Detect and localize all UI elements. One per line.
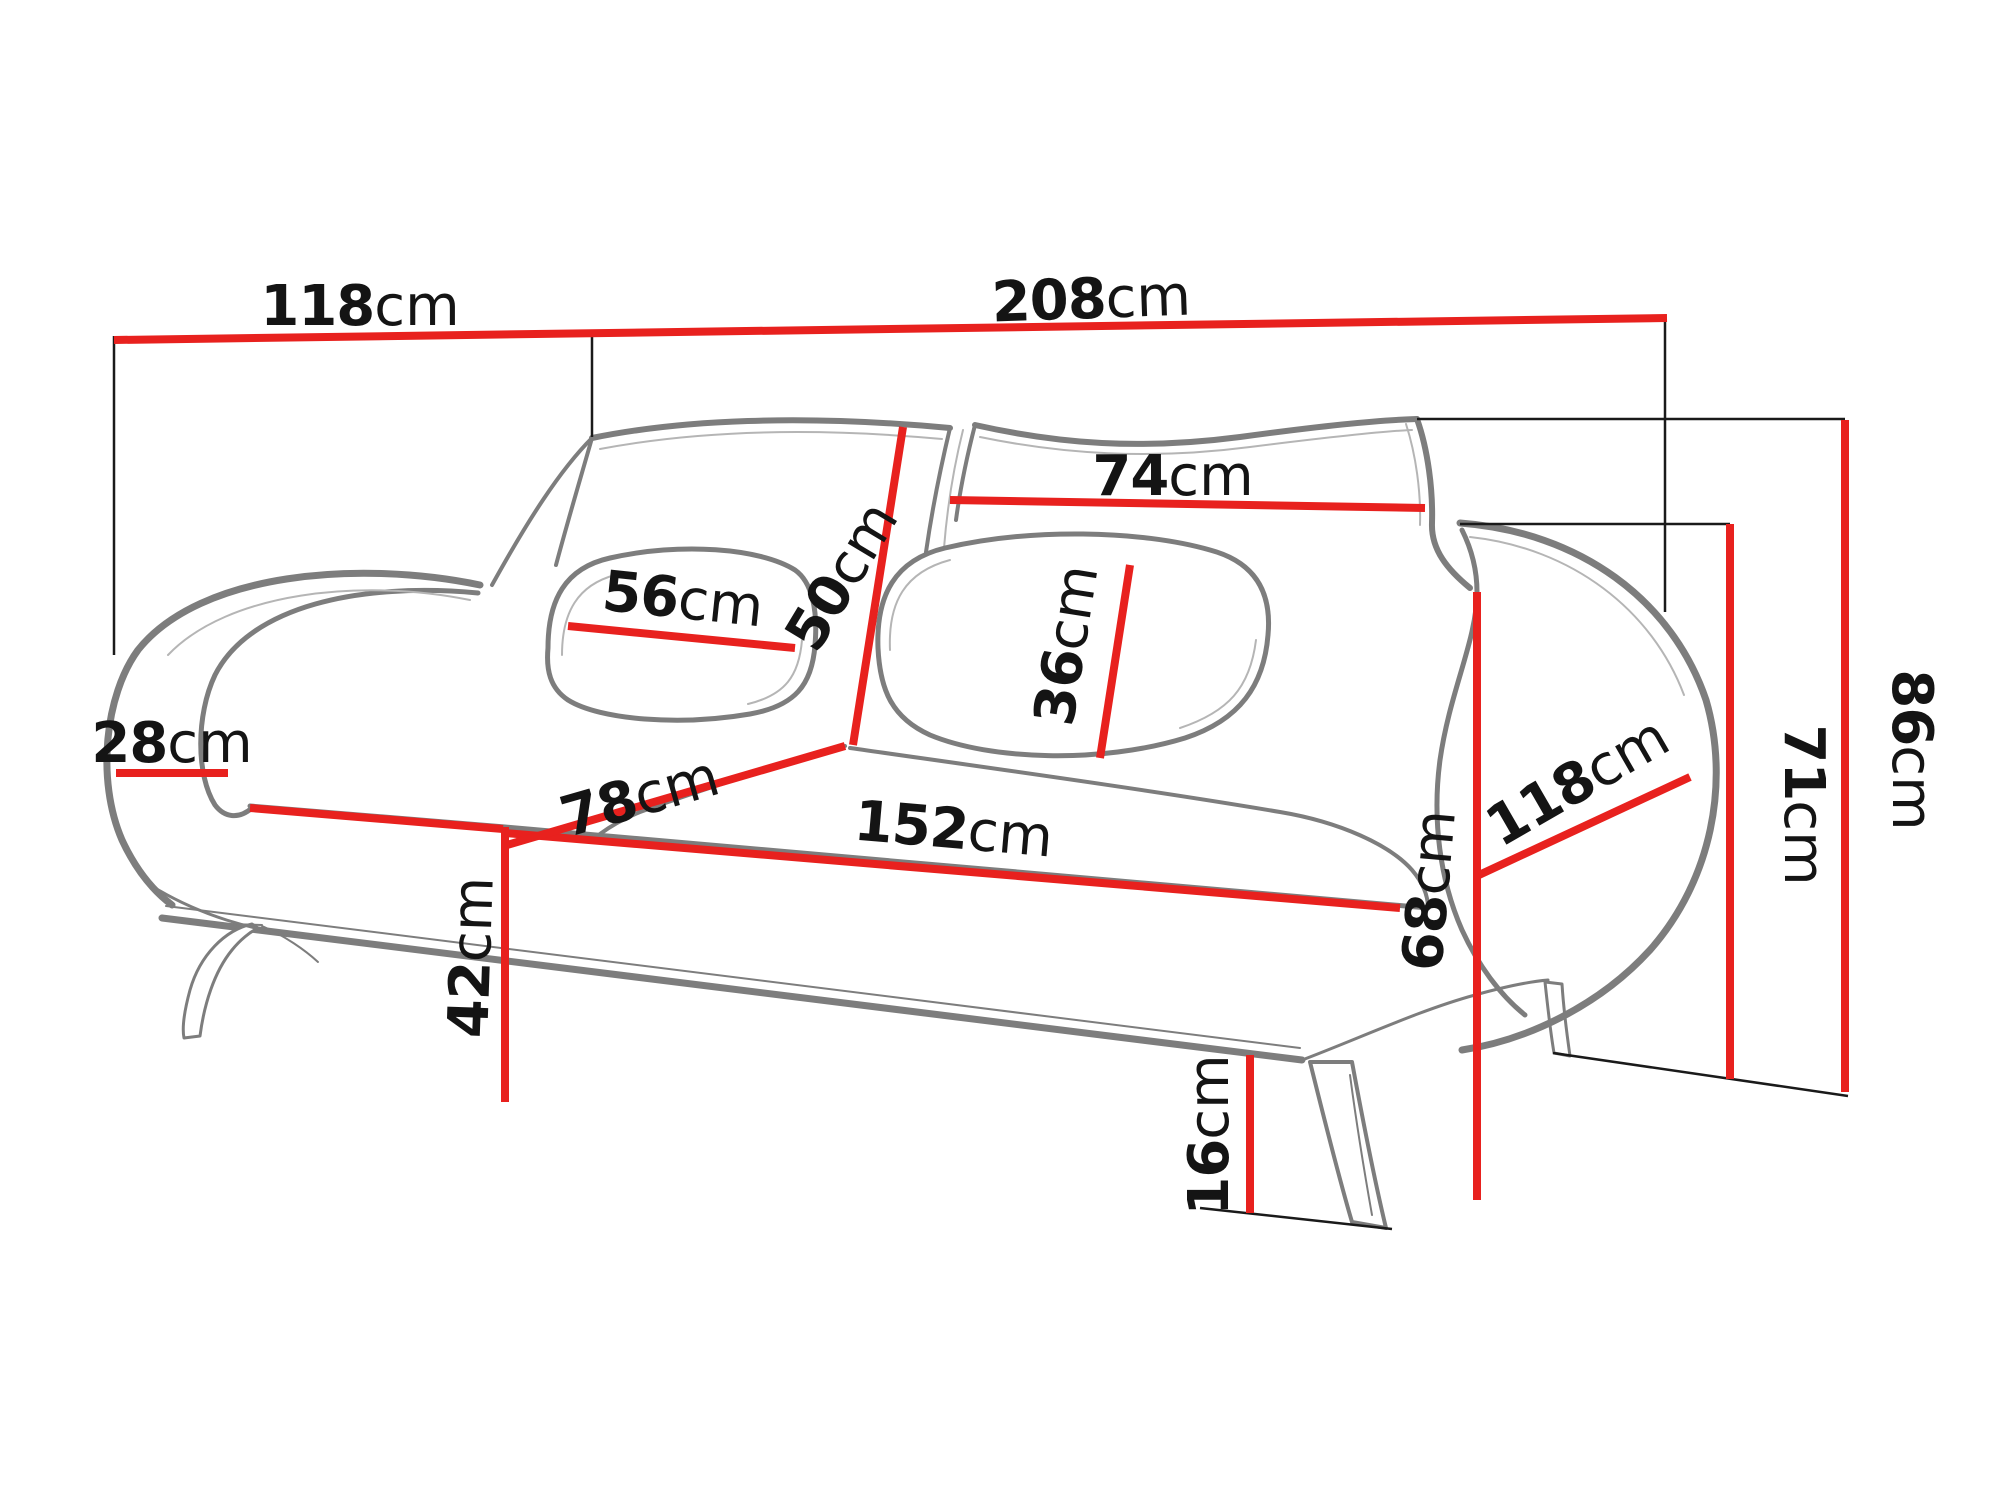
sofa-base-right-bottom-edge [1302, 980, 1548, 1060]
sofa-base-bottom-seam [166, 906, 1300, 1048]
label-armrest-width: 28cm [91, 711, 252, 776]
label-total-width: 208cm [991, 264, 1192, 336]
label-backrest-height: 71cm [1771, 724, 1836, 885]
floor-line-right [1553, 1053, 1848, 1096]
front-right-leg [1310, 1062, 1386, 1228]
front-left-leg [183, 924, 258, 1038]
sofa-left-armrest [107, 438, 592, 938]
right-back-cushion-top [975, 419, 1417, 444]
sofa-dimension-diagram: 118cm 208cm 74cm 56cm 50cm 36cm 28cm 78c… [0, 0, 2000, 1500]
right-back-cushion-right-edge [1417, 419, 1470, 588]
sofa-legs [183, 923, 1570, 1228]
label-seat-depth: 78cm [553, 744, 726, 851]
label-right-backrest-width: 74cm [1092, 444, 1253, 509]
label-side-diagonal-depth: 118cm [1475, 704, 1680, 860]
diagram-canvas: 118cm 208cm 74cm 56cm 50cm 36cm 28cm 78c… [0, 0, 2000, 1500]
back-left-edge [492, 438, 592, 585]
label-total-depth: 118cm [260, 274, 459, 339]
left-back-cushion-right-edge [926, 428, 950, 552]
right-arm-seam [1470, 537, 1684, 695]
left-arm-inner-edge [201, 590, 478, 815]
dim-line-seat-left-edge [250, 808, 503, 829]
left-back-cushion-top-seam [600, 432, 942, 449]
right-back-cushion-left-edge [956, 425, 975, 520]
label-armrest-height: 68cm [1390, 807, 1469, 973]
sofa-base-bottom-edge [162, 918, 1302, 1060]
label-total-height: 86cm [1879, 669, 1944, 830]
label-seat-height: 42cm [436, 876, 507, 1039]
label-leg-height: 16cm [1177, 1054, 1242, 1215]
